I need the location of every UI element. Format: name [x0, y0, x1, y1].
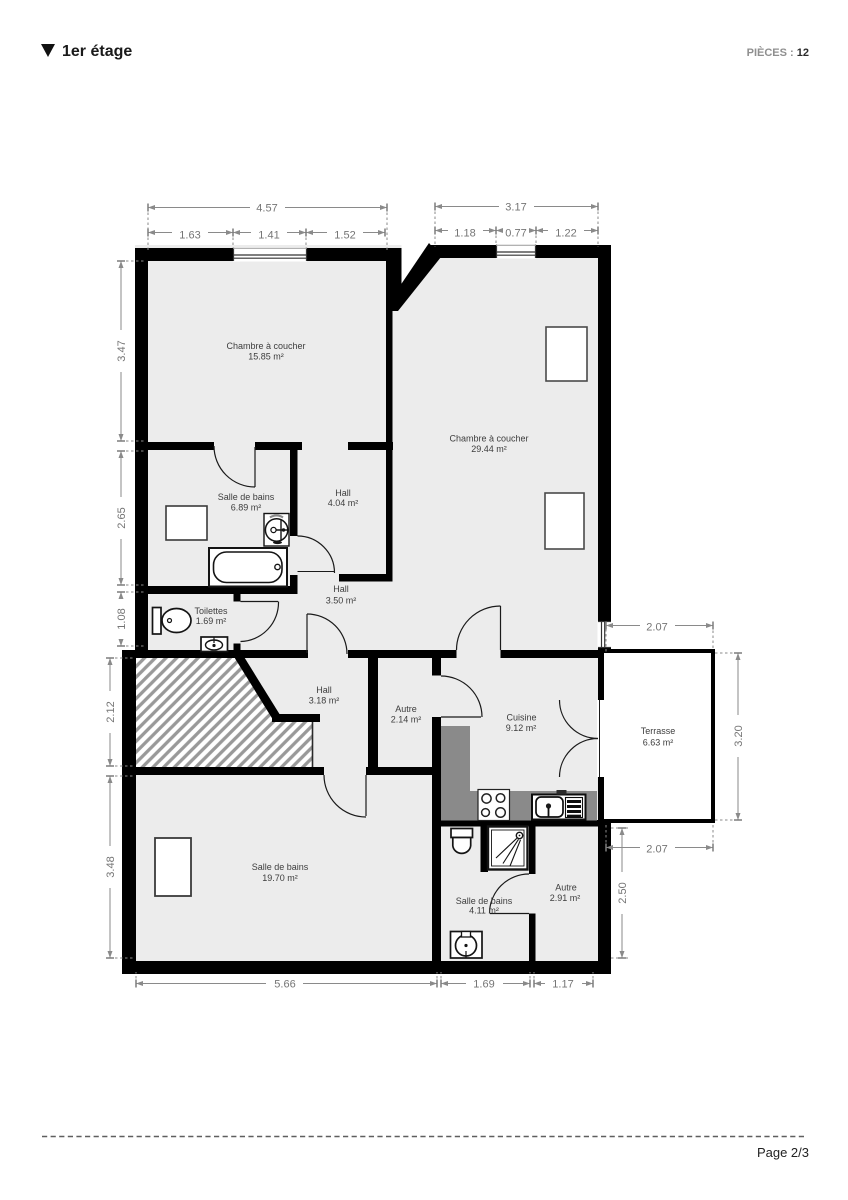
- svg-text:Autre: Autre: [395, 704, 417, 714]
- svg-text:Salle de bains: Salle de bains: [456, 896, 513, 906]
- svg-text:2.07: 2.07: [646, 844, 667, 856]
- svg-text:2.12: 2.12: [105, 701, 117, 722]
- svg-text:Hall: Hall: [316, 685, 332, 695]
- svg-text:1.18: 1.18: [454, 228, 475, 240]
- svg-text:4.57: 4.57: [256, 203, 277, 215]
- svg-text:0.77: 0.77: [505, 228, 526, 240]
- svg-text:1.63: 1.63: [179, 230, 200, 242]
- svg-text:4.04 m²: 4.04 m²: [328, 498, 359, 508]
- svg-text:Toilettes: Toilettes: [194, 606, 228, 616]
- svg-text:1.69 m²: 1.69 m²: [196, 616, 227, 626]
- svg-text:Hall: Hall: [333, 584, 349, 594]
- svg-text:15.85 m²: 15.85 m²: [248, 352, 284, 362]
- svg-text:2.50: 2.50: [617, 882, 629, 903]
- svg-text:2.65: 2.65: [116, 507, 128, 528]
- svg-text:3.48: 3.48: [105, 856, 117, 877]
- svg-text:1.22: 1.22: [555, 228, 576, 240]
- svg-text:Autre: Autre: [555, 883, 577, 893]
- svg-text:2.91 m²: 2.91 m²: [550, 893, 581, 903]
- svg-text:6.63 m²: 6.63 m²: [643, 738, 674, 748]
- svg-text:1.69: 1.69: [473, 979, 494, 991]
- svg-text:19.70 m²: 19.70 m²: [262, 873, 298, 883]
- svg-text:Salle de bains: Salle de bains: [252, 862, 309, 872]
- svg-text:Chambre à coucher: Chambre à coucher: [226, 341, 305, 351]
- svg-text:Cuisine: Cuisine: [506, 713, 536, 723]
- svg-text:1.41: 1.41: [258, 230, 279, 242]
- svg-text:2.14 m²: 2.14 m²: [391, 715, 422, 725]
- svg-text:Chambre à coucher: Chambre à coucher: [449, 434, 528, 444]
- svg-text:29.44 m²: 29.44 m²: [471, 444, 507, 454]
- svg-text:6.89 m²: 6.89 m²: [231, 503, 262, 513]
- svg-text:Hall: Hall: [335, 488, 351, 498]
- svg-text:Page 2/3: Page 2/3: [757, 1145, 809, 1160]
- svg-text:3.20: 3.20: [733, 725, 745, 746]
- svg-text:2.07: 2.07: [646, 622, 667, 634]
- svg-text:Terrasse: Terrasse: [641, 726, 676, 736]
- svg-text:3.50 m²: 3.50 m²: [326, 596, 357, 606]
- svg-text:1.08: 1.08: [116, 608, 128, 629]
- svg-text:3.17: 3.17: [505, 202, 526, 214]
- svg-text:3.47: 3.47: [116, 340, 128, 361]
- svg-text:9.12 m²: 9.12 m²: [506, 723, 537, 733]
- svg-text:3.18 m²: 3.18 m²: [309, 696, 340, 706]
- svg-text:PIÈCES : 12: PIÈCES : 12: [747, 46, 809, 59]
- svg-text:1er étage: 1er étage: [62, 43, 132, 60]
- svg-text:1.52: 1.52: [334, 230, 355, 242]
- svg-text:5.66: 5.66: [274, 979, 295, 991]
- svg-text:4.11 m²: 4.11 m²: [469, 906, 499, 916]
- svg-text:Salle de bains: Salle de bains: [218, 492, 275, 502]
- svg-text:1.17: 1.17: [552, 979, 573, 991]
